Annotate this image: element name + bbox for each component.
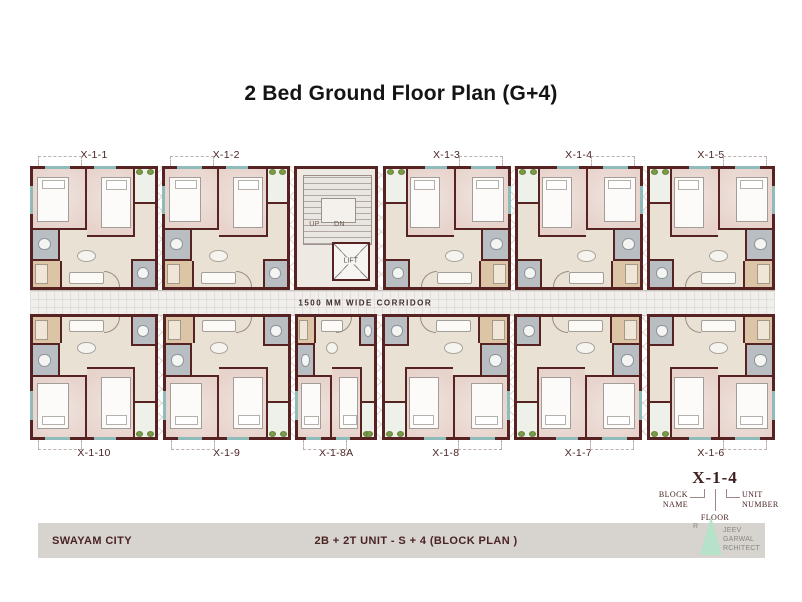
bed-icon xyxy=(233,377,263,429)
unit-rooms xyxy=(30,314,158,440)
window-icon xyxy=(178,437,202,440)
living-room xyxy=(674,237,742,287)
window-icon xyxy=(470,437,494,440)
window-icon xyxy=(735,166,759,169)
bathroom xyxy=(131,259,155,287)
window-icon xyxy=(508,186,511,214)
kitchen xyxy=(298,317,316,343)
apartment-unit: X-1-10 xyxy=(30,314,158,440)
projection-outline xyxy=(303,440,347,450)
balcony xyxy=(386,169,406,204)
bathroom xyxy=(481,230,508,261)
pillow-icon xyxy=(740,180,763,189)
table-icon xyxy=(209,250,227,262)
toilet-icon xyxy=(391,267,403,279)
balcony xyxy=(135,169,155,204)
balcony xyxy=(135,401,155,437)
bathroom xyxy=(131,317,155,346)
pillow-icon xyxy=(607,180,630,189)
entrance-door-arc xyxy=(685,271,701,287)
bed-icon xyxy=(339,377,358,429)
plant-icon xyxy=(651,169,658,175)
bed-icon xyxy=(37,383,69,428)
projection-outline xyxy=(458,440,502,450)
living-room xyxy=(62,237,130,287)
bedroom xyxy=(87,169,136,237)
projection-outline xyxy=(38,156,82,166)
apartment-unit: X-1-9 xyxy=(163,314,291,440)
plant-icon xyxy=(661,169,668,175)
bedroom xyxy=(670,367,719,437)
kitchen xyxy=(33,317,62,343)
projection-outline xyxy=(591,156,635,166)
stairs-up-label: UP xyxy=(309,221,320,228)
apartment-unit: X-1-4 xyxy=(515,166,643,290)
toilet-icon xyxy=(754,238,767,251)
pillow-icon xyxy=(413,180,435,190)
bed-icon xyxy=(674,177,704,228)
window-icon xyxy=(471,166,495,169)
bedroom xyxy=(454,169,508,230)
window-icon xyxy=(30,391,33,420)
bed-icon xyxy=(301,383,321,428)
toilet-icon xyxy=(137,267,149,279)
unit-rooms xyxy=(30,166,158,290)
bedroom xyxy=(586,169,640,230)
window-icon xyxy=(603,437,627,440)
plant-icon xyxy=(366,431,373,437)
plant-icon xyxy=(519,169,526,175)
window-icon xyxy=(45,437,69,440)
window-icon xyxy=(639,391,642,420)
stairs-down-label: DN xyxy=(334,221,345,228)
window-icon xyxy=(163,391,166,420)
bed-icon xyxy=(170,383,202,428)
legend-leader-line xyxy=(715,498,716,511)
toilet-icon xyxy=(621,354,634,367)
projection-outline xyxy=(171,440,215,450)
logo-line: GARWAL xyxy=(723,535,760,544)
entrance-door-arc xyxy=(685,317,701,333)
projection-outline xyxy=(723,440,767,450)
unit-rooms xyxy=(514,314,642,440)
logo-text: JEEV GARWAL RCHITECT xyxy=(723,526,760,553)
bedroom xyxy=(586,375,640,437)
apartment-unit: X-1-1 xyxy=(30,166,158,290)
window-icon xyxy=(603,166,627,169)
bed-icon xyxy=(101,177,131,228)
projection-outline xyxy=(170,156,214,166)
toilet-icon xyxy=(622,238,635,251)
table-icon xyxy=(210,342,228,354)
pillow-icon xyxy=(475,416,498,425)
bed-icon xyxy=(233,177,263,228)
table-icon xyxy=(577,342,595,354)
window-icon xyxy=(772,391,775,420)
plant-icon xyxy=(518,431,525,437)
bed-icon xyxy=(471,383,503,428)
bedroom xyxy=(404,367,453,437)
bathroom xyxy=(165,230,192,261)
balcony xyxy=(268,401,288,437)
toilet-icon xyxy=(137,325,149,337)
logo-letter: R xyxy=(693,523,698,530)
pillow-icon xyxy=(304,416,319,425)
plant-icon xyxy=(529,431,536,437)
footer-bar: SWAYAM CITY 2B + 2T UNIT - S + 4 (BLOCK … xyxy=(38,523,765,558)
toilet-icon xyxy=(38,354,51,367)
kitchen xyxy=(478,317,507,343)
bed-icon xyxy=(542,377,572,429)
balcony xyxy=(362,401,374,437)
table-icon xyxy=(577,250,595,262)
plant-icon xyxy=(397,169,404,175)
bathroom xyxy=(33,230,60,261)
kitchen-counter-icon xyxy=(492,264,505,284)
balcony xyxy=(650,169,670,204)
bedroom xyxy=(219,169,268,237)
entrance-door-arc xyxy=(553,317,569,333)
kitchen xyxy=(610,317,639,343)
table-icon xyxy=(444,342,462,354)
apartment-unit: X-1-3 xyxy=(383,166,511,290)
window-icon xyxy=(306,437,321,440)
apartment-unit: X-1-8 xyxy=(382,314,510,440)
pillow-icon xyxy=(106,180,128,190)
bathroom xyxy=(385,317,409,346)
apartment-unit: X-1-2 xyxy=(162,166,290,290)
legend-block-name-label: BLOCK NAME xyxy=(644,490,688,509)
plan-description: 2B + 2T UNIT - S + 4 (BLOCK PLAN ) xyxy=(314,535,517,547)
pillow-icon xyxy=(175,180,198,189)
bathroom xyxy=(518,259,542,287)
window-icon xyxy=(689,437,711,440)
sofa-icon xyxy=(436,320,471,332)
entrance-door-arc xyxy=(236,271,252,287)
balcony xyxy=(268,169,288,204)
kitchen-counter-icon xyxy=(167,264,180,284)
core-walls: UP DN LIFT xyxy=(294,166,378,290)
living-room xyxy=(674,317,742,367)
plant-icon xyxy=(147,169,154,175)
window-icon xyxy=(735,437,759,440)
window-icon xyxy=(424,437,446,440)
pillow-icon xyxy=(343,415,357,425)
toilet-icon xyxy=(656,325,668,337)
sofa-icon xyxy=(437,272,472,284)
pillow-icon xyxy=(607,416,630,425)
toilet-icon xyxy=(364,325,372,337)
pillow-icon xyxy=(42,416,65,425)
projection-outline xyxy=(38,440,82,450)
balcony xyxy=(517,401,537,437)
plant-icon xyxy=(269,431,276,437)
toilet-icon xyxy=(38,238,51,251)
kitchen-counter-icon xyxy=(624,320,637,340)
bathroom xyxy=(745,230,772,261)
legend-leader-line xyxy=(690,497,704,498)
entrance-door-arc xyxy=(104,271,120,287)
table-icon xyxy=(709,250,727,262)
sofa-icon xyxy=(69,320,104,332)
lift-label: LIFT xyxy=(343,258,359,265)
living-room xyxy=(195,317,263,367)
window-icon xyxy=(30,186,33,214)
unit-rooms xyxy=(382,314,510,440)
bedroom xyxy=(405,169,454,237)
plant-icon xyxy=(387,169,394,175)
kitchen xyxy=(166,317,195,343)
legend-tick xyxy=(704,489,705,498)
toilet-icon xyxy=(656,267,668,279)
window-icon xyxy=(557,166,579,169)
table-icon xyxy=(709,342,727,354)
window-icon xyxy=(772,186,775,214)
pillow-icon xyxy=(678,180,700,190)
bathroom xyxy=(517,317,541,346)
bedroom xyxy=(669,169,718,237)
kitchen xyxy=(610,261,639,287)
toilet-icon xyxy=(170,238,183,251)
entrance-door-arc xyxy=(104,317,120,333)
bedroom xyxy=(33,169,87,230)
table-icon xyxy=(77,342,95,354)
apartment-unit: X-1-5 xyxy=(647,166,775,290)
bedroom xyxy=(718,375,772,437)
window-icon xyxy=(162,186,165,214)
bedroom xyxy=(537,367,586,437)
stair-core: UP DN LIFT xyxy=(294,166,378,290)
toilet-icon xyxy=(523,325,535,337)
toilet-icon xyxy=(489,238,502,251)
plant-icon xyxy=(136,431,143,437)
pillow-icon xyxy=(413,415,435,425)
window-icon xyxy=(640,186,643,214)
entrance-door-arc xyxy=(553,271,569,287)
sofa-icon xyxy=(69,272,104,284)
bathroom xyxy=(386,259,410,287)
bathroom xyxy=(650,259,674,287)
toilet-icon xyxy=(754,354,767,367)
bathroom xyxy=(650,317,674,346)
pillow-icon xyxy=(238,180,260,190)
plant-icon xyxy=(529,169,536,175)
bathroom xyxy=(263,259,287,287)
living-room xyxy=(409,317,477,367)
projection-outline xyxy=(459,156,503,166)
unit-rooms xyxy=(515,166,643,290)
table-icon xyxy=(326,342,338,354)
stair-landing xyxy=(321,198,357,223)
bathroom xyxy=(166,343,193,374)
window-icon xyxy=(689,166,711,169)
floor-plan: X-1-1 xyxy=(30,166,775,442)
corridor-label: 1500 MM WIDE CORRIDOR xyxy=(298,299,432,308)
balcony xyxy=(518,169,538,204)
pillow-icon xyxy=(740,416,763,425)
top-unit-row: X-1-1 xyxy=(30,166,775,290)
toilet-icon xyxy=(391,325,403,337)
bathroom xyxy=(359,317,374,346)
logo-line: RCHITECT xyxy=(723,544,760,553)
bathroom xyxy=(480,343,507,374)
bed-icon xyxy=(37,177,69,222)
bedroom xyxy=(165,169,219,230)
legend-tick xyxy=(715,489,716,498)
toilet-icon xyxy=(524,267,536,279)
unit-rooms xyxy=(647,166,775,290)
bed-icon xyxy=(736,383,768,428)
pillow-icon xyxy=(238,415,260,425)
sofa-icon xyxy=(569,272,604,284)
kitchen xyxy=(743,261,772,287)
project-name: SWAYAM CITY xyxy=(52,535,132,547)
projection-outline xyxy=(723,156,767,166)
living-room xyxy=(410,237,478,287)
unit-rooms xyxy=(295,314,377,440)
plant-icon xyxy=(396,431,403,437)
plant-icon xyxy=(269,169,276,175)
bed-icon xyxy=(410,177,440,228)
pillow-icon xyxy=(475,180,498,189)
kitchen-counter-icon xyxy=(35,264,48,284)
bed-icon xyxy=(101,377,131,429)
entrance-door-arc xyxy=(336,317,352,333)
bedroom xyxy=(219,367,268,437)
bed-icon xyxy=(604,177,636,222)
pillow-icon xyxy=(678,415,700,425)
window-icon xyxy=(295,391,298,420)
page-title: 2 Bed Ground Floor Plan (G+4) xyxy=(0,82,802,106)
kitchen-counter-icon xyxy=(625,264,638,284)
kitchen-counter-icon xyxy=(299,320,307,340)
apartment-unit: X-1-6 xyxy=(647,314,775,440)
bedroom xyxy=(332,367,362,437)
kitchen-counter-icon xyxy=(492,320,505,340)
projection-outline xyxy=(590,440,634,450)
bed-icon xyxy=(409,377,439,429)
toilet-icon xyxy=(301,354,310,367)
bathroom xyxy=(263,317,287,346)
window-icon xyxy=(336,437,350,440)
sofa-icon xyxy=(202,320,237,332)
toilet-icon xyxy=(269,267,281,279)
kitchen xyxy=(33,261,62,287)
staircase-icon: UP DN xyxy=(303,175,372,245)
living-room xyxy=(316,317,359,367)
plant-icon xyxy=(280,431,287,437)
logo-triangle-icon xyxy=(700,517,722,555)
legend-leader-line xyxy=(726,497,740,498)
plant-icon xyxy=(147,431,154,437)
living-room xyxy=(542,317,610,367)
bedroom xyxy=(166,375,220,437)
bathroom xyxy=(298,343,315,374)
window-icon xyxy=(45,166,69,169)
kitchen-counter-icon xyxy=(35,320,48,340)
bedroom xyxy=(453,375,507,437)
corridor: 1500 MM WIDE CORRIDOR xyxy=(30,290,775,316)
pillow-icon xyxy=(175,416,198,425)
apartment-unit: X-1-8A xyxy=(295,314,377,440)
toilet-icon xyxy=(171,354,184,367)
living-room xyxy=(542,237,610,287)
bedroom xyxy=(537,169,586,237)
window-icon xyxy=(226,166,248,169)
entrance-door-arc xyxy=(236,317,252,333)
bedroom xyxy=(298,375,331,437)
table-icon xyxy=(77,250,95,262)
sofa-icon xyxy=(701,272,736,284)
kitchen-counter-icon xyxy=(168,320,181,340)
legend-unit-number-label: UNIT NUMBER xyxy=(742,490,788,509)
sofa-icon xyxy=(201,272,236,284)
entrance-door-arc xyxy=(420,317,436,333)
apartment-unit: X-1-7 xyxy=(514,314,642,440)
bathroom xyxy=(745,343,772,374)
lift-shaft-icon: LIFT xyxy=(332,242,370,281)
bathroom xyxy=(613,343,640,374)
plant-icon xyxy=(662,431,669,437)
pillow-icon xyxy=(546,180,568,190)
bed-icon xyxy=(471,177,503,222)
pillow-icon xyxy=(106,415,128,425)
kitchen-counter-icon xyxy=(757,264,770,284)
window-icon xyxy=(507,391,510,420)
window-icon xyxy=(556,437,578,440)
plant-icon xyxy=(651,431,658,437)
living-room xyxy=(194,237,262,287)
living-room xyxy=(62,317,130,367)
sofa-icon xyxy=(569,320,604,332)
entrance-door-arc xyxy=(421,271,437,287)
bathroom xyxy=(613,230,640,261)
bedroom xyxy=(718,169,772,230)
pillow-icon xyxy=(42,180,65,189)
bottom-unit-row: X-1-10 xyxy=(30,314,775,440)
plant-icon xyxy=(279,169,286,175)
window-icon xyxy=(227,437,249,440)
pillow-icon xyxy=(545,415,567,425)
bed-icon xyxy=(736,177,768,222)
unit-rooms xyxy=(647,314,775,440)
kitchen xyxy=(165,261,194,287)
plant-icon xyxy=(136,169,143,175)
bed-icon xyxy=(603,383,635,428)
plant-icon xyxy=(386,431,393,437)
window-icon xyxy=(94,437,116,440)
bed-icon xyxy=(542,177,572,228)
legend-example-code: X-1-4 xyxy=(640,468,790,488)
window-icon xyxy=(94,166,116,169)
bathroom xyxy=(33,343,60,374)
unit-rooms xyxy=(163,314,291,440)
logo-line: JEEV xyxy=(723,526,760,535)
kitchen-counter-icon xyxy=(757,320,770,340)
bedroom xyxy=(33,375,87,437)
window-icon xyxy=(177,166,201,169)
balcony xyxy=(650,401,670,437)
bedroom xyxy=(87,367,136,437)
bed-icon xyxy=(674,377,704,429)
window-icon xyxy=(425,166,447,169)
unit-rooms xyxy=(162,166,290,290)
toilet-icon xyxy=(270,325,282,337)
floor-plan-sheet: 2 Bed Ground Floor Plan (G+4) X-1-1 xyxy=(0,0,802,602)
unit-rooms xyxy=(383,166,511,290)
sofa-icon xyxy=(701,320,736,332)
kitchen xyxy=(743,317,772,343)
